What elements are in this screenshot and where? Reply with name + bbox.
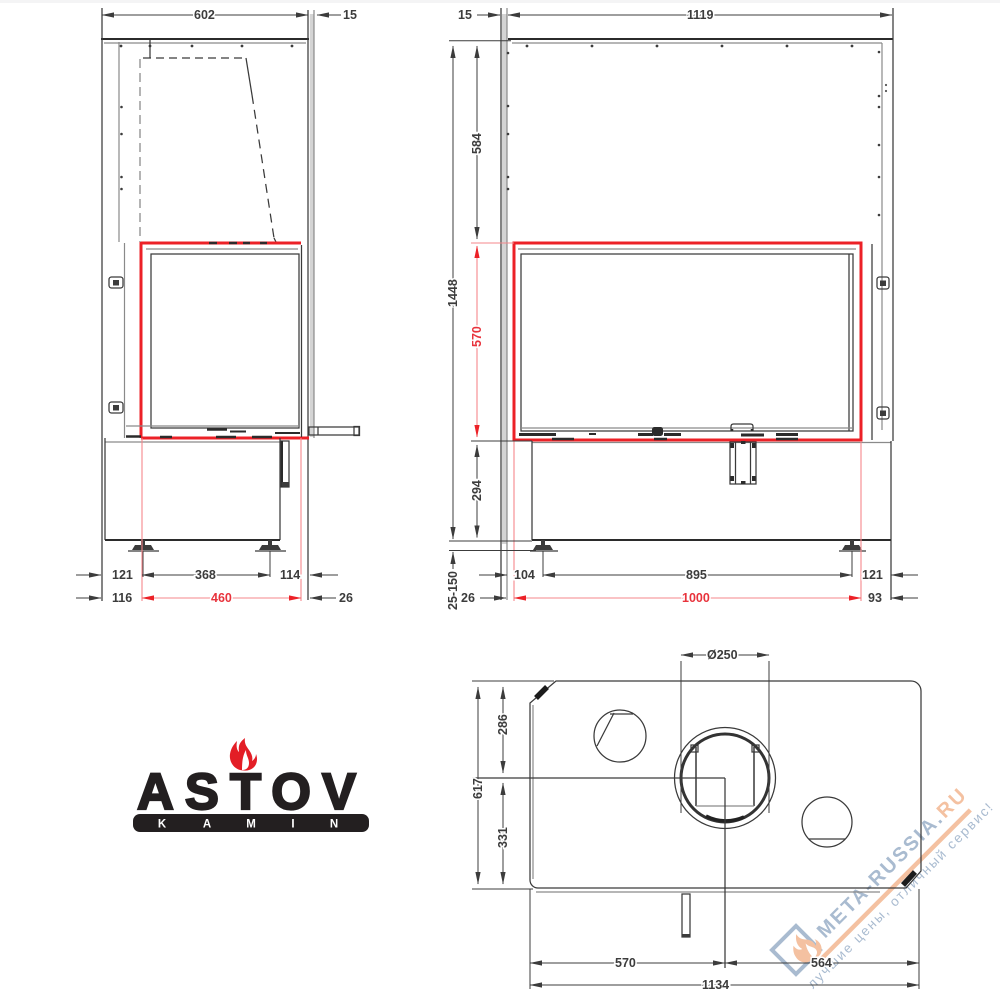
svg-text:26: 26 xyxy=(339,591,353,605)
svg-text:M: M xyxy=(246,819,256,831)
svg-text:K: K xyxy=(158,819,167,831)
svg-text:460: 460 xyxy=(211,591,232,605)
svg-text:331: 331 xyxy=(496,827,510,848)
svg-text:121: 121 xyxy=(862,568,883,582)
svg-text:1134: 1134 xyxy=(702,978,729,992)
svg-text:617: 617 xyxy=(471,778,485,799)
svg-text:1119: 1119 xyxy=(687,8,713,22)
svg-text:121: 121 xyxy=(112,568,133,582)
svg-text:294: 294 xyxy=(470,480,484,501)
svg-text:ASTOV: ASTOV xyxy=(137,763,369,820)
svg-text:15: 15 xyxy=(343,8,357,22)
svg-text:602: 602 xyxy=(194,8,215,22)
svg-text:116: 116 xyxy=(112,591,132,605)
svg-text:МЕТА-RUSSIA.RU: МЕТА-RUSSIA.RU xyxy=(813,784,972,943)
svg-text:570: 570 xyxy=(615,956,636,970)
svg-text:895: 895 xyxy=(686,568,707,582)
svg-text:1448: 1448 xyxy=(446,279,460,307)
svg-text:лучшие цены, отличный сервис!: лучшие цены, отличный сервис! xyxy=(804,799,996,991)
svg-text:570: 570 xyxy=(470,326,484,347)
svg-text:A: A xyxy=(203,819,211,831)
svg-text:368: 368 xyxy=(195,568,216,582)
svg-text:15: 15 xyxy=(458,8,472,22)
svg-text:104: 104 xyxy=(514,568,535,582)
svg-text:564: 564 xyxy=(811,956,832,970)
svg-text:1000: 1000 xyxy=(682,591,710,605)
svg-text:114: 114 xyxy=(280,568,300,582)
svg-text:26: 26 xyxy=(461,591,475,605)
svg-text:25-150: 25-150 xyxy=(446,571,460,610)
svg-text:I: I xyxy=(291,819,294,831)
svg-text:N: N xyxy=(330,819,338,831)
svg-text:584: 584 xyxy=(470,133,484,154)
svg-text:Ø250: Ø250 xyxy=(707,648,738,662)
svg-text:286: 286 xyxy=(496,714,510,735)
svg-text:93: 93 xyxy=(868,591,882,605)
